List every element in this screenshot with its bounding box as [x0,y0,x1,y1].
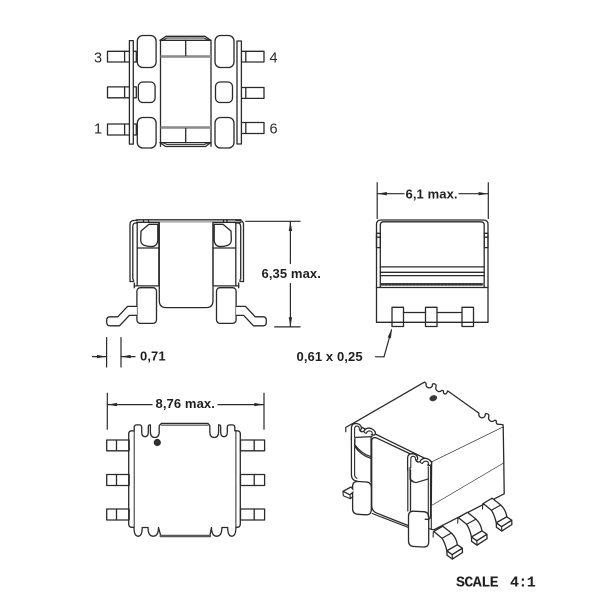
svg-text:3: 3 [94,51,102,67]
svg-text:4:1: 4:1 [510,575,536,592]
svg-text:1: 1 [94,122,102,138]
svg-text:6,1 max.: 6,1 max. [406,187,458,202]
svg-text:6,35 max.: 6,35 max. [262,266,321,281]
svg-text:SCALE: SCALE [456,575,499,592]
svg-text:0,61 x 0,25: 0,61 x 0,25 [297,349,363,364]
svg-text:0,71: 0,71 [140,349,166,364]
svg-text:4: 4 [270,51,278,67]
svg-text:6: 6 [270,122,278,138]
svg-text:8,76 max.: 8,76 max. [156,396,215,411]
